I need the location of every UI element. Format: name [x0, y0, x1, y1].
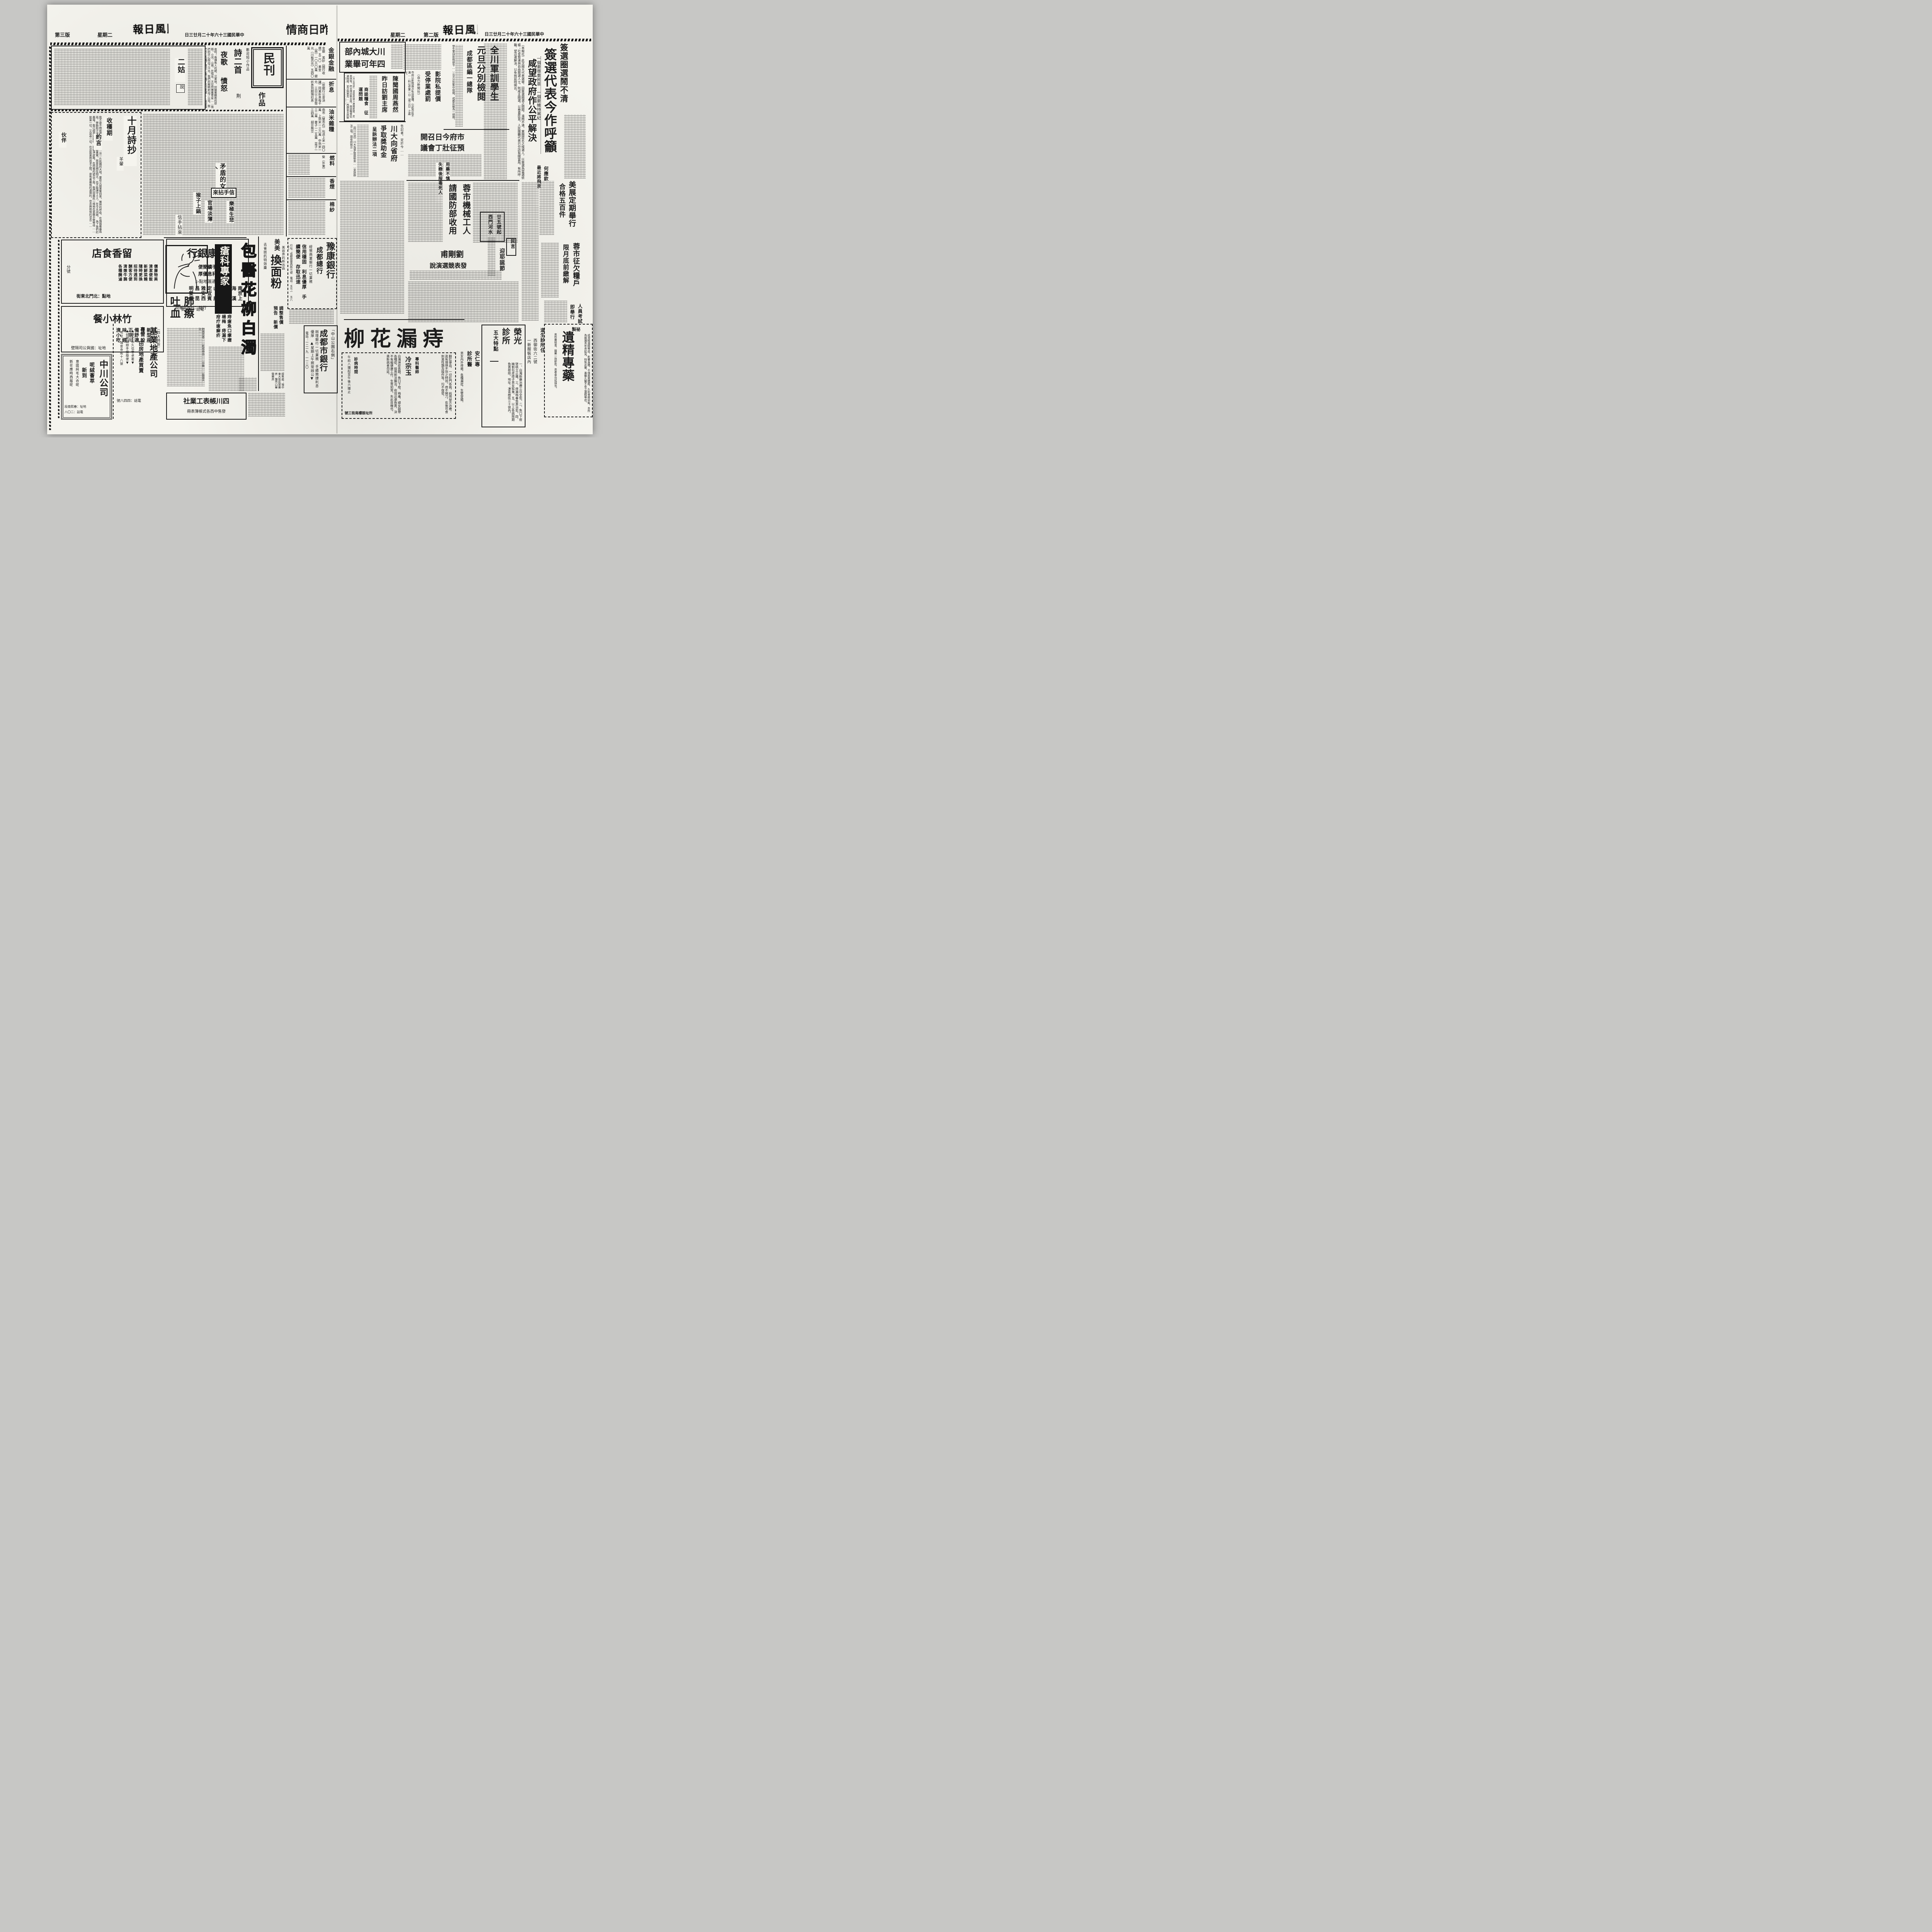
headline-art-exhibition: 美展定期舉行	[566, 181, 577, 234]
unreadable-text-region	[248, 393, 285, 417]
cinema-source-tag: （自力新聞社）	[415, 73, 420, 111]
ad-meimei-sellers: 經售處：場中東大街民眾藥房 鹽市口華榮藥房	[260, 372, 284, 389]
ad-anren-hours-label: 診病時間	[352, 357, 358, 387]
column-label-minyan: 民言	[506, 238, 516, 256]
ad-liuxiang-restaurant: 店食香留 分號 價廉物美 清潔便飯 新鮮菜餚 隨時更換 招待週到 酬客方便 清燉…	[61, 240, 164, 304]
market-row-label: 折息	[327, 81, 335, 100]
ad-chuangke-items: 痔瘡魚口瘰癧楊梅 痔漏下疳疔瘡癬疥	[210, 315, 232, 344]
ad-anren-doctor-name: 冷宗玉	[403, 356, 412, 394]
chen-visit-headline2: 昨日訪劉主席	[377, 76, 388, 118]
lead-body: （本報社）此次國大代表選舉，因簽選圈選之問題，淆鬧不清。黨團提名之候選人，以簽選…	[508, 43, 525, 179]
ad-jiye-tag: 專營	[139, 327, 145, 339]
ad-zhongchuan-address: 段南熙春：址地	[65, 405, 108, 409]
river-notice-line2: 西門河水	[486, 214, 493, 238]
cinema-headline: 影院私提價	[431, 71, 441, 113]
headline-exam: 人員考試	[576, 304, 583, 327]
headline-grain-arrears: 蓉市征欠糧戶	[570, 243, 580, 297]
ad-meimei-notice: 調整售價 預告 新價	[262, 306, 284, 332]
ad-jiye-phone: 號八四四：話電	[117, 398, 157, 403]
newspaper-scan: 第三版 星期二 報日風民 日三廿月二十年六十三國民華中 情商日昨 金銀金融 金銀…	[0, 0, 607, 437]
ad-yijing-right-body: 成滑精漏精等症，影響身體，不僅面黃體瘦，久則骨瘦如柴。本所為維護青年界起見，特製…	[577, 334, 590, 413]
october-poems-box: 我不是不問收穫的耕耘者……這一片飢餓的大地，要從火燄里奪回來。熾熱的呼吸，在煽揚…	[51, 112, 141, 238]
ad-zhongchuan-line: 新到	[80, 367, 87, 381]
conscription-headline: 開召日今府市	[420, 131, 475, 141]
unreadable-text-region	[288, 201, 325, 235]
supplement-works-label: 作品	[256, 92, 266, 112]
supplement-seal-text: 民刊	[259, 52, 276, 83]
poem-title-promise: 約言	[94, 134, 102, 150]
unreadable-text-region	[455, 45, 463, 127]
essay-title-christmas: 迎耶誕節	[496, 248, 505, 277]
market-row-label: 金銀金融	[326, 47, 335, 77]
ad-jiye-slogan: ▲如蒙賜辦手續簡便▼	[124, 329, 129, 393]
essays-zone: 矛盾的女人 來拈手信 樂極生悲 官場淡薄 猴子上鍋 信手拈來	[142, 112, 284, 236]
market-row-values: 南市（雙市石）包送上米一四〇萬 上熟米一三六萬 中熟米一三二萬 麥子一二五萬 菜…	[288, 108, 325, 151]
market-divider	[287, 153, 336, 154]
ad-anren-mid-body: 白濁淋症各期，魚口下疳，梅毒，婦女崩帶各種症，採用新法醫治，收效迅速負責，決不有…	[359, 355, 401, 415]
poem-title-companion: 伙伴	[59, 132, 66, 148]
ad-rongguang-points: 一、白濁新藥治療三日全愈。二、魚口下疳墜桃立止痛。三、痔漏梅毒負責治愈。四、精割…	[484, 362, 522, 423]
ad-zhongchuan-line: 呢絨薈萃	[87, 362, 95, 387]
ad-liuxiang-branch: 分號	[64, 265, 70, 283]
market-divider	[287, 107, 336, 107]
article-cinema-fined: 影院私提價 受停業處罰 （自力新聞社） 市府以影院兩次私自提價，引起市民不滿………	[402, 43, 443, 121]
ad-zhongchuan-title: 中川公司	[96, 360, 109, 408]
univ-grant-kicker: 告記者，定於今……	[398, 124, 404, 175]
poem-title-harvest: 收穫期	[104, 117, 113, 141]
section-rule	[51, 110, 283, 111]
ad-citybank-lines: 辦理銀行一切業務 手續簡捷利息優厚 ▲星期上午照常辦公▼	[308, 330, 318, 389]
liu-speech-headline: 說演選競表發	[430, 260, 485, 270]
article-chen-visit-box: 陳聞國周燕然 昨日訪劉主席 商談糧食 征運問題 （大公社訊）渝區高級人員陳開國、…	[344, 73, 405, 121]
market-column: 金銀金融 金銀 美鈔（國行收價）五二〇 黃金（兩）一〇六〇萬 銀元（川板百元）五…	[286, 46, 336, 236]
article-military-training: 全川軍訓學生 元旦分別檢閱 成都區編一總隊 學生軍訓依照部令……元旦分別集中檢閱…	[444, 43, 509, 130]
ad-zhongchuan-company: 中川公司 呢絨薈萃 新到 意國純毛大衣呢 新花應時西服呢 段南熙春：址地 八〇二…	[61, 354, 112, 420]
ad-liuxiang-title: 店食香留	[75, 246, 149, 260]
market-divider	[287, 199, 336, 200]
ads-left-border	[58, 240, 60, 418]
headline-art-exhibition2: 合格五百件	[556, 183, 566, 231]
ad-citybank-phone: 電話：一二一九 一一二〇	[304, 332, 309, 389]
market-divider	[287, 176, 336, 177]
unreadable-text-region	[408, 182, 443, 242]
ad-meimei-brand: 美美	[270, 239, 281, 254]
ad-citybank-bracket: 「中山公園右側」	[328, 328, 335, 366]
ad-anren-clinic-col: 安仁專	[472, 351, 480, 376]
pickup-item: 猴子上鍋	[193, 192, 201, 215]
poem-title-night-song: 夜歌	[218, 51, 228, 72]
novel-genre-tag: 說	[176, 84, 185, 93]
ad-zhongchuan-line: 意國純毛大衣呢	[73, 360, 79, 410]
unreadable-text-region	[564, 114, 586, 179]
ad-jiye-business: 田房地產買賣	[136, 341, 144, 380]
ad-liuxiang-address: 街東北門北：點地	[77, 293, 147, 299]
page3-header-rule	[50, 43, 327, 45]
page2-header-rule	[338, 39, 591, 41]
chen-visit-body: （大公社訊）渝區高級人員陳開國、周燕然等，昨日拜訪劉主席，商談糧食征運問題，並交…	[345, 75, 355, 119]
chen-visit-kicker: 商談糧食 征運問題	[355, 87, 369, 118]
ad-medical-cluster: 肺瘵吐血 肺病患者……乾咳帶血……中醫……能當天治…… 瘡科專家 痔瘡魚口瘰癧楊…	[164, 237, 247, 392]
ad-meimei-left-note: 去雀斑的特效藥	[261, 243, 267, 289]
workers-headline2: 請國防部收用	[444, 184, 457, 243]
page3-masthead-logo: 報日風民	[133, 20, 168, 41]
ad-anren-hours: 午前八鐘起至午後六鐘止	[345, 355, 351, 414]
pickups-column-header: 來拈手信	[211, 188, 236, 198]
unreadable-text-region	[288, 178, 325, 198]
univ-grant-headline2: 爭取獎助金	[377, 125, 387, 176]
unreadable-text-region	[54, 49, 170, 105]
market-row-label: 棉紗	[327, 202, 335, 224]
ad-jiye-title: 基業地產公司	[146, 327, 158, 393]
military-training-body: 學生軍訓依照部令……元旦分別集中檢閱，成都區編為一總隊。	[445, 45, 455, 127]
pickups-trailing-label: 信手拈來	[175, 215, 182, 236]
market-row-label: 燃料	[327, 155, 335, 172]
market-section-header: 情商日昨	[286, 21, 328, 37]
military-training-headline3: 成都區編一總隊	[463, 50, 473, 120]
poems-two-author: 荆	[233, 94, 241, 103]
ad-anren-right-body: 翻肛便血，一切肛門各病，純用祕方治療，眞有理想不到之特效。痔不開刀，愈後可食刺激…	[426, 355, 452, 415]
unreadable-text-region	[357, 124, 369, 177]
novel-erku-box: 二姑 說	[51, 46, 206, 110]
ad-zhangbiao-workshop: 社業工表帳川四 冊表簿帳式各西中售發	[166, 393, 247, 420]
ad-zhongchuan-phone: 八〇二：話電	[65, 410, 108, 415]
market-row-label: 油米雜糧	[327, 109, 335, 145]
ad-yukang-business: 經營商業銀行一切業務	[307, 245, 312, 296]
pickup-item: 樂極生悲	[226, 201, 234, 223]
ad-chuangke-title: 瘡科專家	[215, 244, 232, 314]
october-author: 羊翬	[117, 157, 124, 171]
unreadable-text-region	[522, 182, 539, 321]
workers-headline: 蓉市機械工人	[458, 184, 471, 243]
supplement-masthead-seal: 民刊	[251, 47, 284, 88]
ad-rongguang-clinic: 榮光 診所 五大特點 一、白濁新藥治療三日全愈。二、魚口下疳墜桃立止痛。三、痔漏…	[481, 325, 526, 427]
novel-title: 二姑	[175, 58, 185, 82]
ad-anren-big-title: 柳花漏痔	[344, 319, 464, 351]
pickup-item: 官場淡薄	[205, 200, 213, 223]
woodcut-illustration	[167, 246, 204, 290]
ad-citybank-title: 成都市銀行	[318, 329, 328, 389]
unreadable-text-region	[188, 49, 202, 105]
unreadable-text-region	[544, 301, 567, 322]
unreadable-text-region	[403, 44, 441, 70]
unreadable-text-region	[488, 237, 495, 276]
ad-meimei-title: 換面粉	[268, 254, 283, 305]
headline-grain-arrears2: 限月底前繳解	[560, 244, 570, 295]
ad-meimei-powder: 美容界的新出品 美美 換面粉 去雀斑的特效藥 調整售價 預告 新價 經售處：場中…	[258, 236, 286, 391]
ad-jiye-realestate: 基業地產公司 專營 田房地產買賣 ▲歷史攸久信譽卓著▼ ▲如蒙賜辦手續簡便▼ 地…	[113, 324, 161, 419]
page2-number: 第二版	[423, 31, 444, 38]
univ-graduation-headline2: 業畢可年四	[345, 58, 390, 68]
unreadable-text-region	[408, 281, 519, 322]
page3-number: 第三版	[55, 31, 76, 38]
ad-jiye-slogan: ▲歷史攸久信譽卓著▼	[129, 329, 134, 393]
ad-liuxiang-features: 價廉物美 清潔便飯 新鮮菜餚 隨時更換 招待週到 酬客方便 清燉牛腩 各種醃滷	[72, 264, 158, 289]
cinema-headline2: 受停業處罰	[421, 71, 431, 113]
military-training-headline: 全川軍訓學生	[486, 46, 499, 125]
unreadable-text-region	[369, 76, 377, 118]
ad-zhongchuan-line: 新花應時西服呢	[67, 360, 73, 410]
ad-daosheng-line2: 西御街六二號	[531, 338, 537, 385]
market-row-label: 香煙	[327, 179, 335, 196]
ad-yukang-slogans: 信用穩固 利息優厚 手續簡便 存取迅速	[293, 244, 307, 301]
article-univ-grant: 告記者，定於今…… 川大向省府 爭取獎助金 呈訴辦法二項 （四川社訊）川大為爭取…	[339, 121, 406, 179]
lead-headline: 簽選代表今作呼籲	[542, 48, 558, 165]
ad-yukang-contact: 行址：成都提督西街七號 電話：五七一 五八九五	[288, 244, 293, 303]
unreadable-text-region	[239, 377, 257, 391]
unreadable-text-region	[167, 328, 205, 386]
market-divider	[287, 79, 336, 80]
poems-two-text: 夜呵！像捕魚人的網，沉重地，封鎖著戰敗的原野。小河，山崗，在喘息，天空閃爍著寒星…	[206, 48, 217, 110]
ad-rongguang-tag: 五大特點	[490, 330, 498, 362]
ad-zhangbiao-title: 社業工表帳川四	[171, 396, 242, 405]
ad-yukang-subtitle: 成都總行	[313, 247, 323, 291]
market-row-values: 金銀 美鈔（國行收價）五二〇 黃金（兩）一〇六〇萬 銀元（川板百元）五四〇萬	[288, 47, 325, 78]
ad-yijing-left-body: 來所費檢查，服藥一劑即愈，患者幸勿延誤也。	[546, 333, 557, 413]
chen-visit-headline: 陳聞國周燕然	[388, 76, 399, 118]
river-notice-line: 廿五號起	[495, 214, 502, 238]
market-row-values: 柴（外東）	[310, 155, 325, 175]
ad-zhangbiao-subtitle: 冊表簿帳式各西中售發	[173, 408, 240, 414]
page2-weekday: 星期二	[390, 31, 409, 38]
unreadable-text-region	[289, 309, 334, 324]
page2-dateline: 日三廿月二十年六十三國民華中	[485, 31, 573, 37]
lead-deck: 咸望政府作公平解決	[525, 59, 537, 155]
ad-anren-clinic-col2: 診所醫	[464, 351, 472, 376]
univ-grant-body: （四川社訊）川大為爭取獎助金……呈訴辦法二項，請省府核示……	[341, 124, 356, 177]
ad-yukang-bank: 豫康銀行 成都總行 經營商業銀行一切業務 信用穩固 利息優厚 手續簡便 存取迅速…	[287, 238, 337, 309]
unreadable-text-region	[260, 333, 284, 371]
univ-grant-headline3: 呈訴辦法二項	[369, 127, 377, 174]
page3-weekday: 星期二	[97, 31, 116, 38]
unreadable-text-region	[539, 181, 554, 235]
headline-exam2: 即舉行	[569, 304, 575, 325]
article-univ-graduation-box: 部內城大川 業畢可年四	[339, 42, 406, 73]
ad-rongguang-title: 榮光	[511, 328, 522, 352]
poems-two-header: 詩二首	[231, 49, 243, 86]
ad-yijing-title: 遺精專藥	[559, 331, 576, 404]
ad-daosheng-line3: 一新服裝店內	[525, 338, 531, 385]
conscription-headline2: 議會丁壯征預	[420, 142, 475, 151]
coughing-man-woodcut	[165, 245, 208, 294]
ad-anren-items: 男女內外痔瘡，各種漏症，生管穿腸。	[457, 352, 464, 414]
liu-speech-name: 甫剛劉	[440, 248, 473, 259]
unreadable-text-region	[541, 243, 559, 298]
military-training-headline2: 元旦分別檢閱	[473, 46, 486, 125]
page3-dateline: 日三廿月二十年六十三國民華中	[185, 32, 274, 37]
ad-yijing-medicine: 製祕 成滑精漏精等症，影響身體，不僅面黃體瘦，久則骨瘦如柴。本所為維護青年界起見…	[544, 324, 593, 417]
ad-baoyi-title: 包醫花柳白濁	[238, 243, 257, 376]
ad-feizhai-title: 肺瘵吐血	[169, 296, 195, 325]
ad-jiye-address: 地址：海會寺街十八號	[118, 331, 123, 391]
ad-zhulin-title: 餐小林竹	[74, 311, 151, 325]
univ-graduation-headline: 部內城大川	[345, 46, 390, 56]
unreadable-text-region	[340, 181, 404, 314]
unreadable-text-region	[288, 155, 310, 175]
unreadable-text-region	[391, 44, 403, 69]
supplement-welcome-note: 歡迎短小作品	[243, 48, 249, 90]
ad-anren-detail-box: 翻肛便血，一切肛門各病，純用祕方治療，眞有理想不到之特效。痔不開刀，愈後可食刺激…	[342, 352, 456, 419]
unreadable-text-region	[143, 114, 284, 235]
ad-chengdu-city-bank: 「中山公園右側」 成都市銀行 辦理銀行一切業務 手續簡捷利息優厚 ▲星期上午照常…	[304, 325, 338, 393]
october-header: 十月詩抄	[124, 116, 137, 166]
ad-anren-address: 號三街南樓鼓址所	[345, 410, 403, 415]
ad-rongguang-title2: 診所	[499, 328, 511, 352]
ad-anren-doctor-label: 專科醫師	[413, 357, 419, 390]
ad-yukang-title: 豫康銀行	[323, 242, 335, 294]
univ-grant-headline: 川大向省府	[387, 125, 398, 176]
poem-title-anger: 憤怒	[218, 77, 228, 98]
market-row-values: （依銀行公會決議）同業折息每千元 三日以上貨幣折息到期預扣息	[288, 80, 325, 105]
